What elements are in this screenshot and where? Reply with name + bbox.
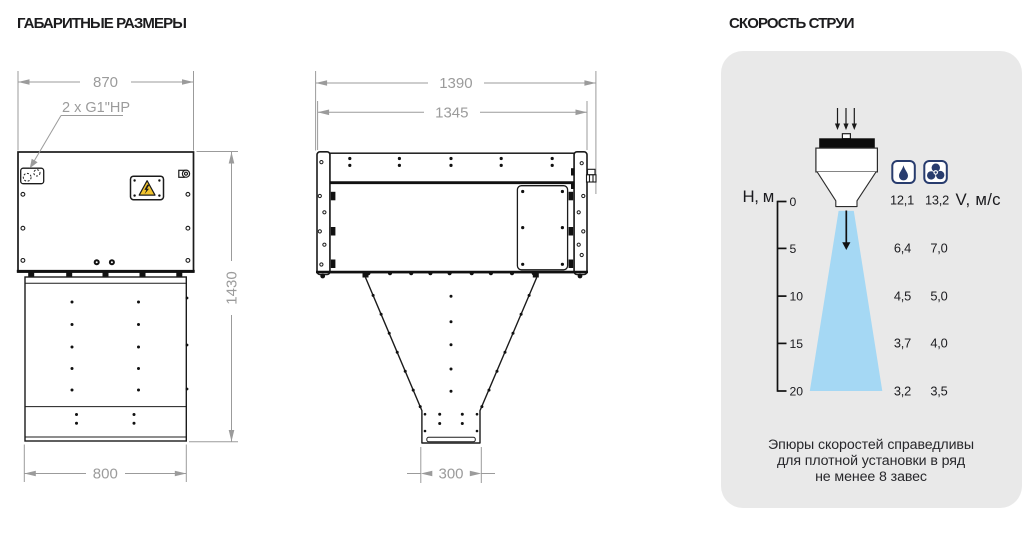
svg-text:6,4: 6,4	[894, 241, 911, 256]
svg-text:7,0: 7,0	[930, 241, 947, 256]
svg-text:1345: 1345	[435, 104, 468, 121]
svg-text:10: 10	[790, 290, 804, 304]
svg-text:V, м/с: V, м/с	[956, 190, 1001, 209]
svg-text:3,7: 3,7	[894, 336, 911, 351]
svg-text:13,2: 13,2	[925, 192, 949, 207]
svg-text:Н, м: Н, м	[743, 187, 774, 206]
svg-text:300: 300	[438, 466, 463, 483]
svg-text:4,0: 4,0	[930, 336, 947, 351]
svg-text:0: 0	[790, 195, 797, 209]
svg-text:12,1: 12,1	[890, 192, 914, 207]
svg-text:3,5: 3,5	[930, 383, 947, 398]
svg-text:1430: 1430	[224, 271, 241, 304]
svg-text:1390: 1390	[439, 75, 472, 92]
svg-text:15: 15	[790, 337, 804, 351]
svg-text:5: 5	[790, 242, 797, 256]
svg-text:870: 870	[93, 74, 118, 91]
svg-text:800: 800	[93, 466, 118, 483]
svg-text:4,5: 4,5	[894, 288, 911, 303]
svg-text:2 x G1"HP: 2 x G1"HP	[62, 100, 130, 116]
svg-text:5,0: 5,0	[930, 288, 947, 303]
svg-text:3,2: 3,2	[894, 383, 911, 398]
svg-text:20: 20	[790, 385, 804, 399]
